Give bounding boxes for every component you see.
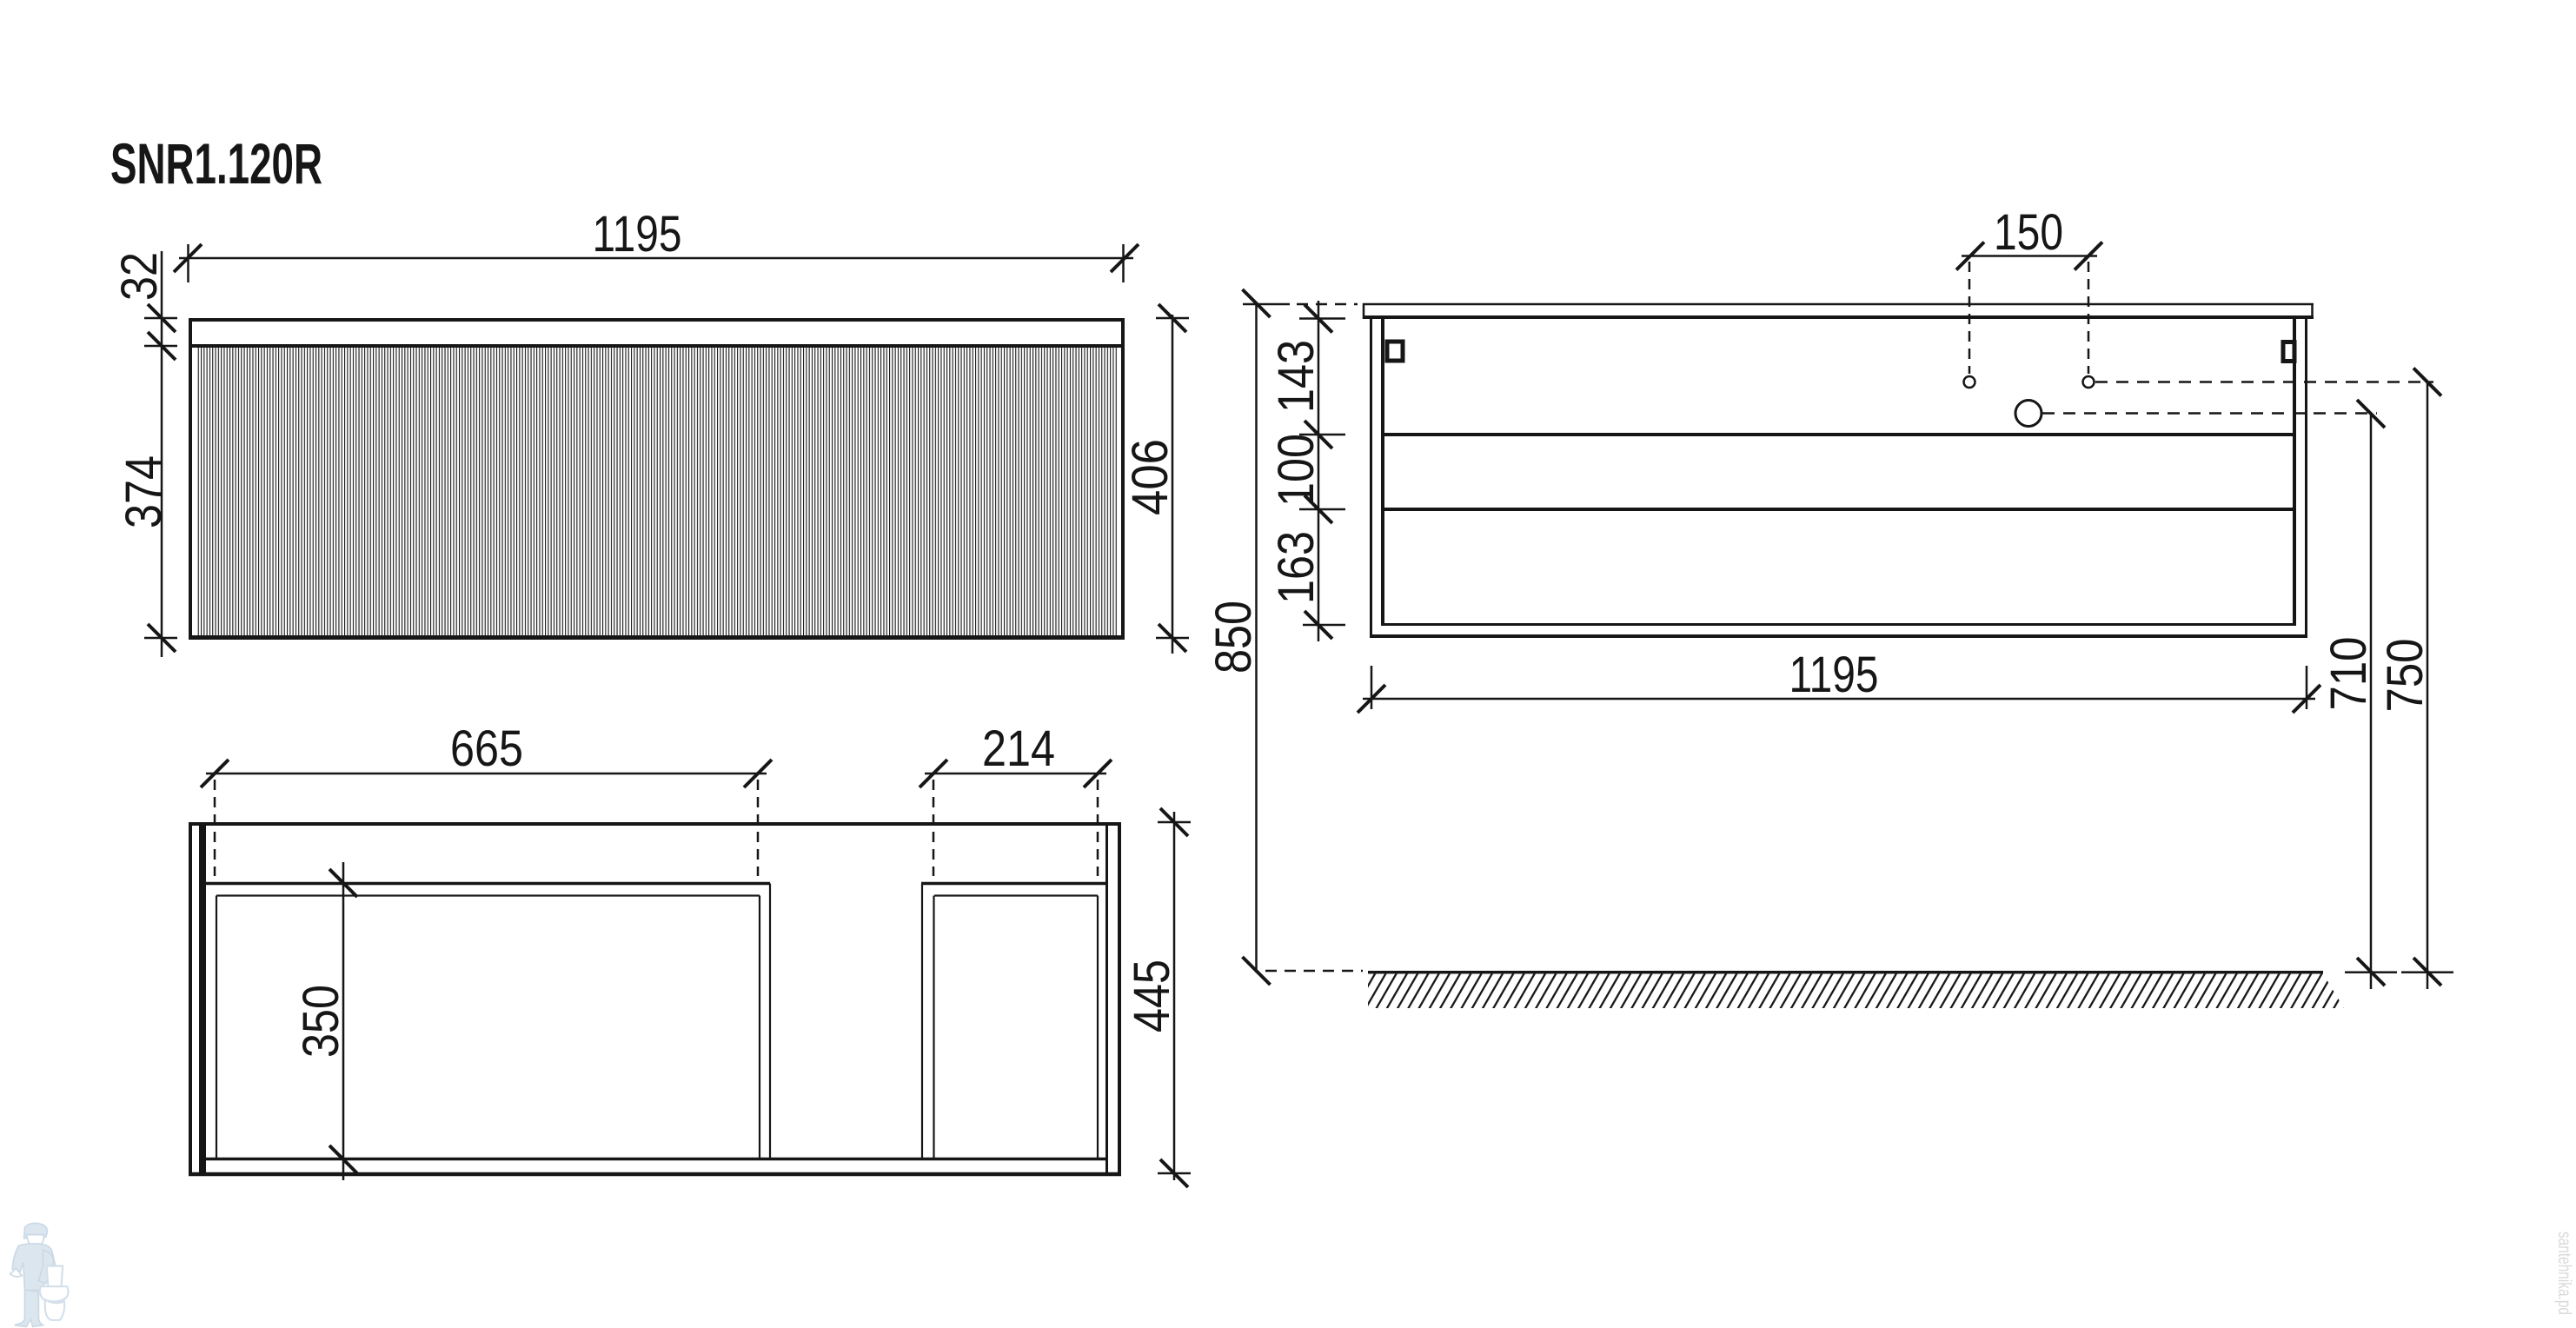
svg-text:445: 445 — [1124, 959, 1180, 1033]
svg-text:santehnika.pd: santehnika.pd — [2554, 1232, 2574, 1315]
svg-text:150: 150 — [1994, 204, 2063, 261]
svg-text:406: 406 — [1122, 439, 1178, 515]
svg-text:665: 665 — [450, 720, 523, 777]
svg-text:214: 214 — [982, 720, 1055, 777]
svg-text:1195: 1195 — [1789, 647, 1879, 703]
svg-text:1195: 1195 — [593, 206, 682, 262]
svg-text:350: 350 — [293, 985, 349, 1058]
svg-text:850: 850 — [1205, 601, 1262, 674]
svg-text:710: 710 — [2320, 637, 2377, 711]
svg-text:750: 750 — [2377, 639, 2433, 713]
svg-text:143: 143 — [1268, 340, 1325, 413]
svg-text:163: 163 — [1268, 531, 1325, 604]
svg-text:32: 32 — [111, 252, 168, 301]
svg-text:100: 100 — [1268, 434, 1325, 507]
svg-text:374: 374 — [116, 455, 172, 528]
svg-text:SNR1.120R: SNR1.120R — [110, 131, 322, 196]
